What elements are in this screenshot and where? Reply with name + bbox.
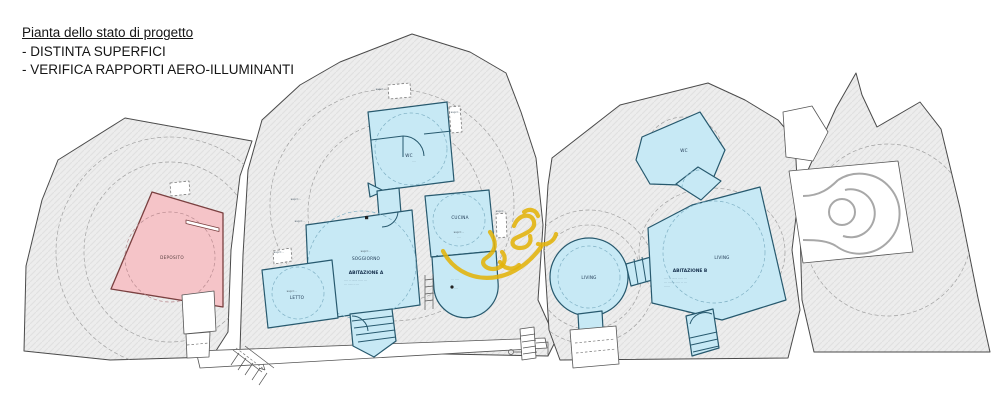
room-wc-a <box>368 102 454 191</box>
title-bullet-aeroilluminanti: - VERIFICA RAPPORTI AERO-ILLUMINANTI <box>22 61 294 80</box>
micro-annotation: sup=··· <box>454 230 465 234</box>
rock-mass-far-right <box>783 73 990 352</box>
room-cucina <box>425 190 495 257</box>
room-label-deposito: DEPOSITO <box>160 255 184 260</box>
passage-below-deposito <box>186 332 210 358</box>
niche-above-deposito <box>170 181 190 196</box>
room-label-abitazione-b: ABITAZIONE B <box>673 268 708 274</box>
micro-annotation: ···· <box>454 286 458 290</box>
room-label-cucina: CUCINA <box>451 215 468 220</box>
niche-above-wc-a <box>388 83 411 99</box>
niche-right-cucina <box>496 213 507 238</box>
micro-annotation: ···· <box>412 159 416 163</box>
micro-annotation: sup=··· <box>361 249 372 253</box>
micro-annotation: ··· ····· ·· ··· <box>344 282 359 286</box>
micro-annotation: ··· ···· <box>451 277 459 281</box>
plan-title: Pianta dello stato di progetto <box>22 24 294 43</box>
micro-annotation: sup=··· <box>274 250 285 254</box>
stair-chamber <box>789 161 913 263</box>
micro-annotation: sup=··· <box>291 197 302 201</box>
floor-plan-canvas: DEPOSITO <box>0 0 1000 405</box>
room-label-abitazione-a: ABITAZIONE A <box>349 270 384 276</box>
room-round-bottom <box>432 251 498 318</box>
title-bullet-superfici: - DISTINTA SUPERFICI <box>22 43 294 62</box>
room-label-living-b: LIVING <box>714 255 729 260</box>
room-label-wc-b: WC <box>680 148 687 153</box>
vestibule-below-living <box>570 326 619 368</box>
pilaster-marker <box>365 216 368 219</box>
vestibule-deposito <box>182 291 216 334</box>
room-letto <box>262 260 338 328</box>
room-label-living-circle: LIVING <box>581 275 596 280</box>
micro-annotation: ···· <box>457 235 461 239</box>
micro-annotation: sup=··· <box>451 110 462 114</box>
micro-annotation: sup=··· <box>295 219 306 223</box>
room-label-letto: LETTO <box>290 295 305 300</box>
micro-annotation: sup=··· <box>376 87 387 91</box>
micro-annotation: ······ <box>664 284 670 288</box>
micro-annotation: sup=··· <box>496 209 507 213</box>
room-label-soggiorno: SOGGIORNO <box>352 256 381 261</box>
room-label-wc-a: WC <box>405 153 412 158</box>
title-block: Pianta dello stato di progetto - DISTINT… <box>22 24 294 80</box>
micro-annotation: sup=··· <box>287 289 298 293</box>
